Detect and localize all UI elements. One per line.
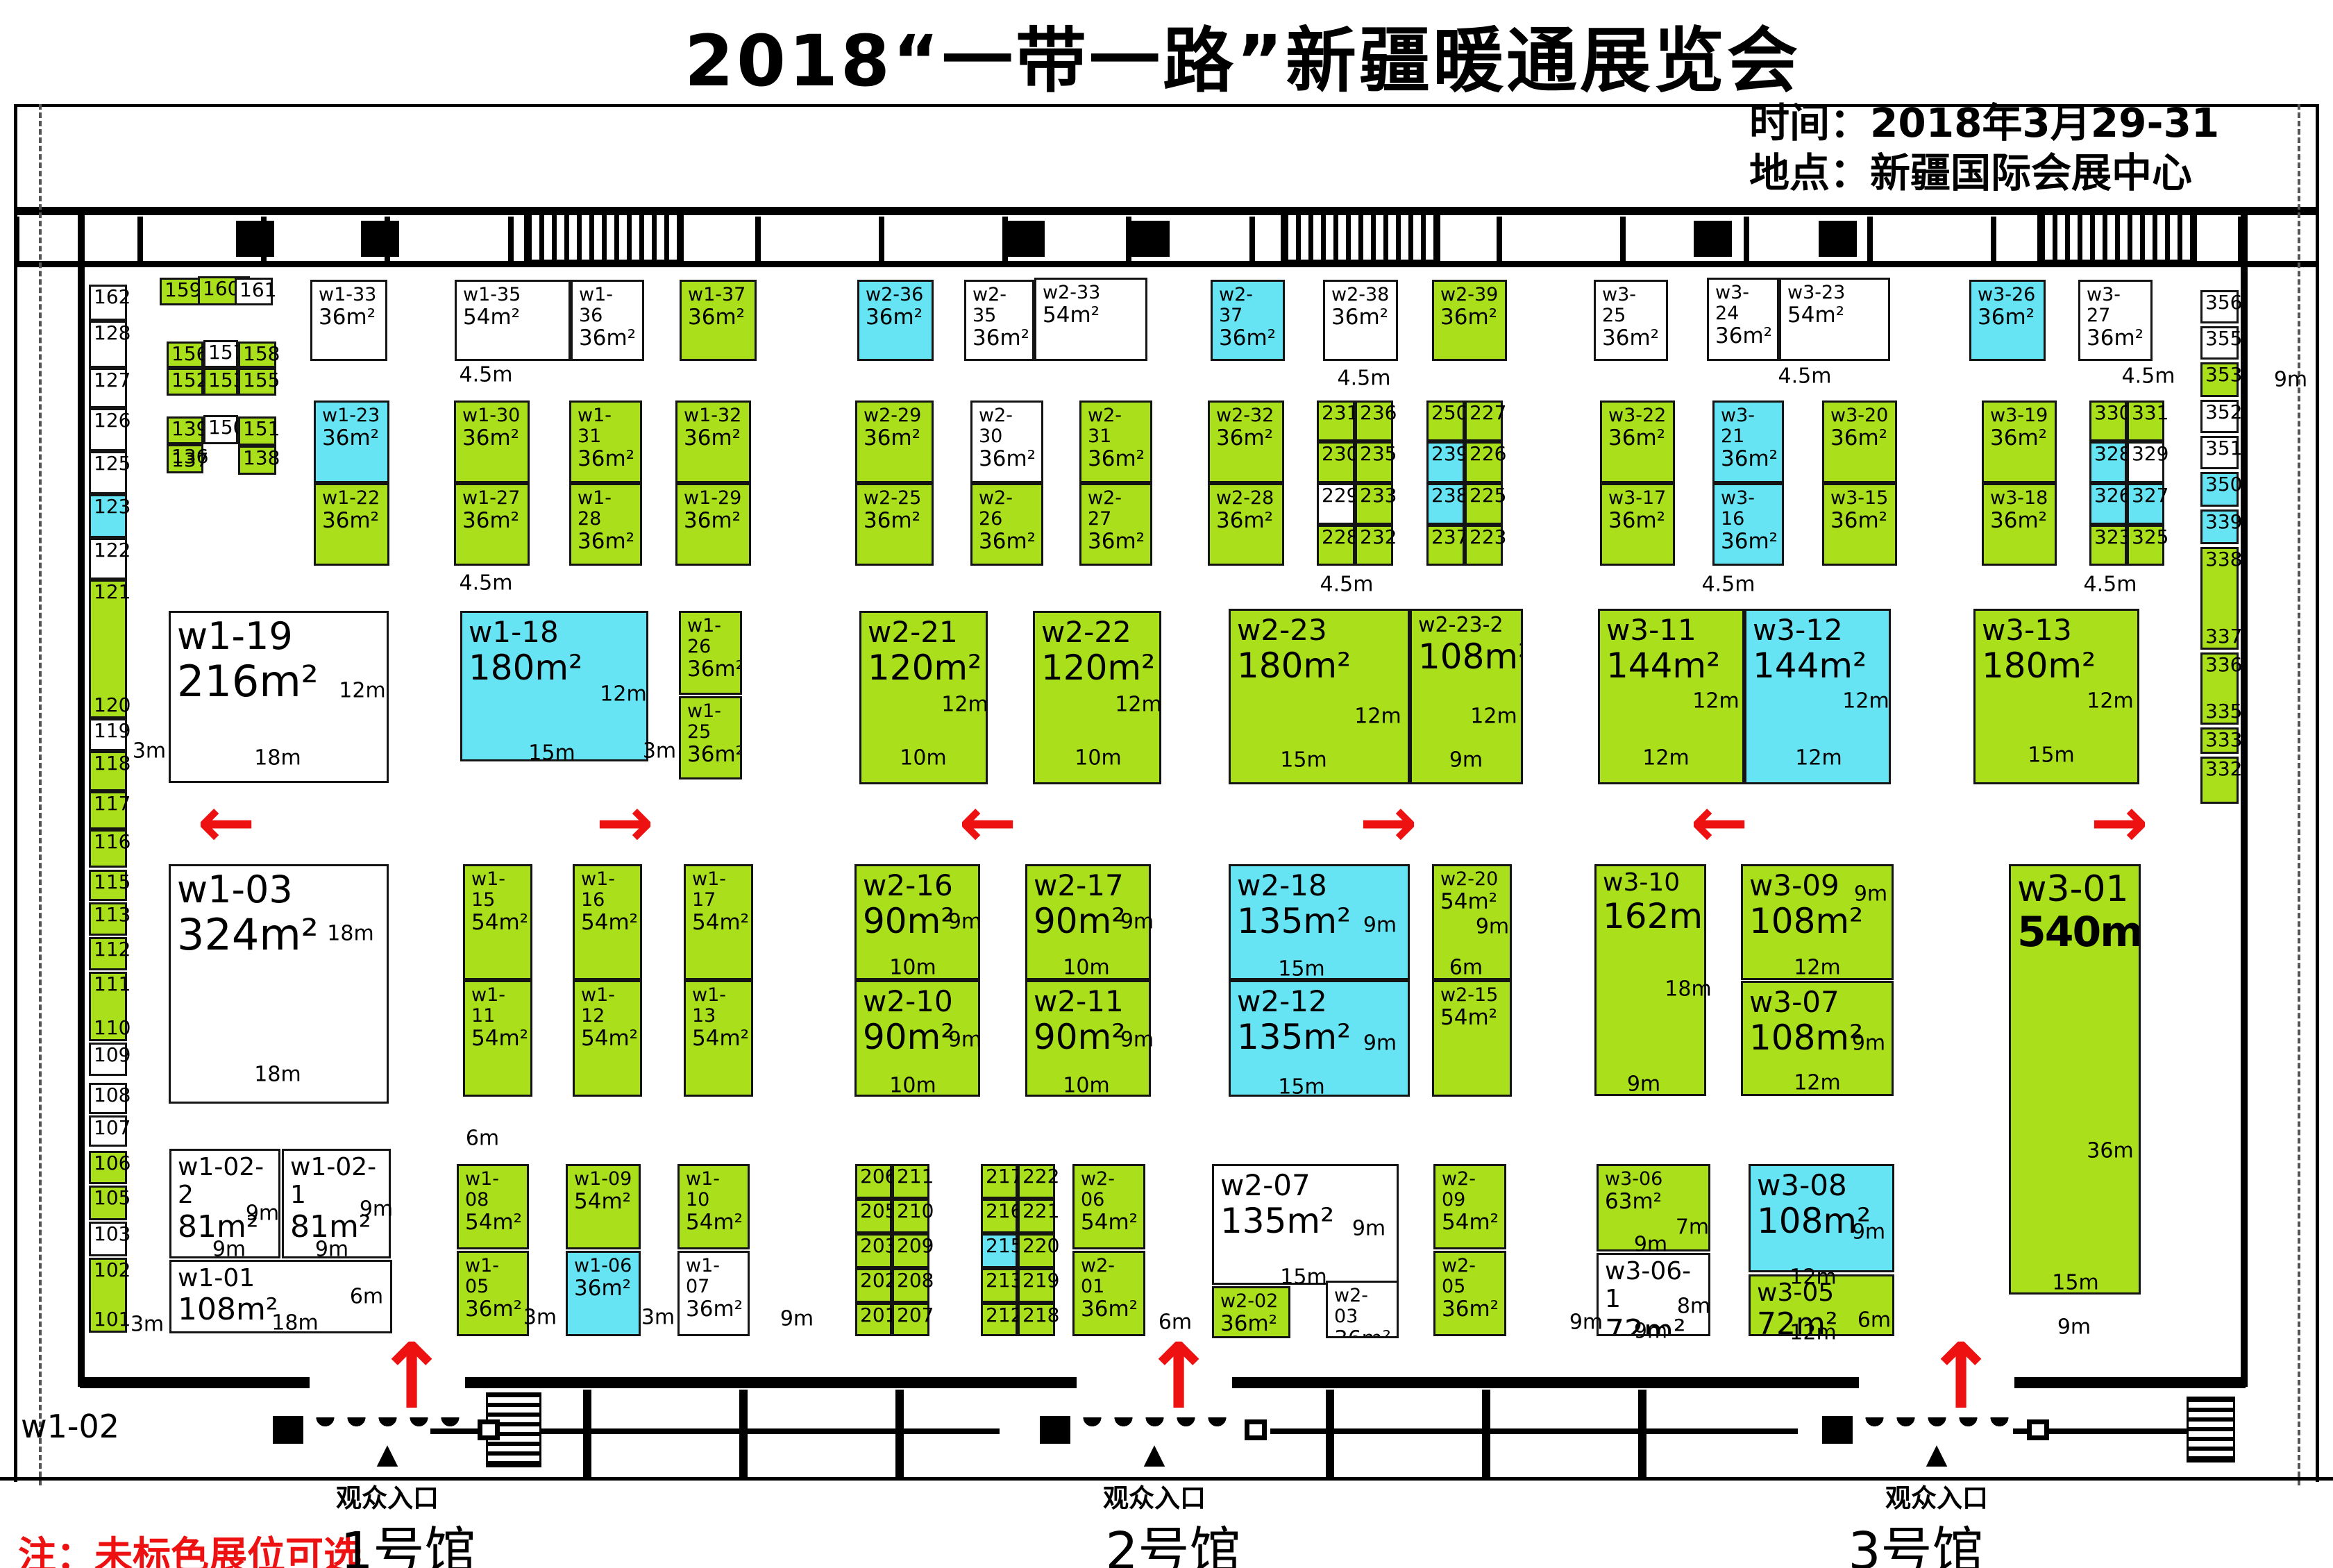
left-arrow-icon: ← [1690, 788, 1749, 857]
booth-id-label: w2-11 [1034, 985, 1143, 1018]
booth-area-label: 36m² [1220, 1312, 1282, 1336]
booth-227[interactable]: 227 [1465, 401, 1503, 441]
booth-w2-03[interactable]: w2-0336m² [1326, 1281, 1399, 1338]
booth-217[interactable]: 217 [981, 1164, 1018, 1199]
cell-number-label: 117 [94, 792, 130, 815]
booth-123[interactable]: 123 [89, 494, 127, 538]
corridor-post-1 [583, 1390, 591, 1477]
dimension-label: 36m [2087, 1139, 2133, 1163]
booth-w1-30[interactable]: w1-3036m² [454, 401, 530, 483]
booth-area-label: 54m² [471, 1027, 524, 1051]
booth-355[interactable]: 355 [2200, 326, 2239, 360]
booth-323[interactable]: 323 [2089, 525, 2127, 566]
booth-id-label: w1-25 [687, 701, 734, 743]
dimension-label: 7m [1676, 1215, 1709, 1240]
dimension-label: 9m [1854, 882, 1887, 907]
booth-w3-22[interactable]: w3-2236m² [1600, 401, 1675, 483]
booth-area-label: 36m² [579, 326, 636, 351]
booth-338[interactable]: 338337 [2200, 547, 2239, 650]
corridor-post-4 [1326, 1390, 1334, 1477]
dimension-label: 12m [1692, 689, 1739, 714]
booth-area-label: 36m² [1216, 509, 1276, 533]
availability-note: 注：未标色展位可选 [18, 1524, 362, 1568]
booth-w1-35[interactable]: w1-3554m² [455, 280, 571, 361]
cell-number-label: 101 [94, 1310, 130, 1329]
booth-id-label: w1-10 [686, 1169, 741, 1211]
dimension-label: 6m [1858, 1308, 1891, 1333]
booth-111[interactable]: 111110 [89, 972, 127, 1041]
booth-237[interactable]: 237 [1426, 525, 1465, 566]
booth-328[interactable]: 328 [2089, 441, 2127, 483]
booth-w3-08[interactable]: w3-08108m² [1749, 1164, 1894, 1272]
booth-107[interactable]: 107 [89, 1115, 127, 1147]
booth-213[interactable]: 213 [981, 1268, 1018, 1303]
booth-121[interactable]: 121120 [89, 580, 127, 718]
booth-230[interactable]: 230 [1317, 441, 1355, 483]
booth-117[interactable]: 117 [89, 791, 127, 829]
booth-id-label: w3-26 [1978, 285, 2037, 305]
booth-113[interactable]: 113 [89, 902, 127, 936]
booth-w3-21[interactable]: w3-2136m² [1712, 401, 1784, 483]
booth-w2-28[interactable]: w2-2836m² [1208, 483, 1284, 566]
booth-w3-20[interactable]: w3-2036m² [1822, 401, 1897, 483]
booth-150[interactable]: 150 [203, 415, 238, 444]
booth-area-label: 36m² [322, 426, 381, 450]
booth-id-label: w1-13 [692, 985, 745, 1027]
booth-225[interactable]: 225 [1465, 483, 1503, 525]
dimension-label: 4.5m [460, 571, 513, 596]
booth-id-label: w3-12 [1753, 614, 1883, 646]
booth-w1-23[interactable]: w1-2336m² [314, 401, 389, 483]
booth-w1-22[interactable]: w1-2236m² [314, 483, 389, 566]
booth-209[interactable]: 209 [892, 1233, 929, 1268]
top-door-block-1 [236, 221, 274, 257]
booth-area-label: 36m² [319, 305, 379, 330]
booth-161[interactable]: 161 [235, 278, 273, 305]
booth-w2-31[interactable]: w2-3136m² [1079, 401, 1152, 483]
booth-id-label: w1-12 [581, 985, 634, 1027]
hall-label-2号馆: 2号馆 [1105, 1510, 1240, 1568]
booth-id-label: w3-01 [2017, 869, 2132, 909]
booth-area-label: 54m² [692, 1027, 745, 1051]
booth-w2-25[interactable]: w2-2536m² [855, 483, 934, 566]
booth-area-label: 108m² [1418, 637, 1515, 676]
booth-231[interactable]: 231 [1317, 401, 1355, 441]
booth-331[interactable]: 331 [2127, 401, 2164, 441]
dimension-label: 12m [941, 693, 988, 717]
booth-id-label: w3-08 [1757, 1169, 1886, 1202]
dimension-label: 4.5m [1338, 366, 1391, 391]
dimension-label: 15m [2052, 1271, 2098, 1295]
booth-223[interactable]: 223 [1465, 525, 1503, 566]
booth-id-label: w2-18 [1237, 869, 1401, 902]
booth-w1-28[interactable]: w1-2836m² [569, 483, 642, 566]
booth-id-label: w2-17 [1034, 869, 1143, 902]
dimension-label: 18m [254, 746, 301, 770]
booth-area-label: 36m² [1088, 530, 1144, 554]
booth-area-label: 36m² [687, 743, 734, 767]
booth-id-label: w3-11 [1606, 614, 1736, 646]
dimension-label: 18m [1665, 977, 1711, 1002]
booth-w1-17[interactable]: w1-1754m² [684, 864, 753, 980]
cell-number-label: 118 [94, 752, 130, 775]
cell-number-label: 122 [94, 539, 130, 562]
booth-w3-01[interactable]: w3-01540m² [2009, 864, 2141, 1295]
dimension-label: 4.5m [1320, 573, 1374, 597]
booth-area-label: 180m² [1237, 646, 1401, 685]
booth-w1-26[interactable]: w1-2636m² [679, 611, 742, 695]
booth-w2-27[interactable]: w2-2736m² [1079, 483, 1152, 566]
entrance-label: 观众入口 [1885, 1477, 1988, 1515]
cell-number-label: 236 [1360, 401, 1397, 424]
booth-area-label: 36m² [578, 530, 634, 554]
booth-350[interactable]: 350 [2200, 472, 2239, 507]
outer-wall-top [14, 104, 2318, 107]
right-axis-dashline [2298, 104, 2300, 1485]
booth-id-label: w2-33 [1043, 283, 1139, 303]
booth-233[interactable]: 233 [1355, 483, 1393, 525]
booth-area-label: 54m² [581, 1027, 634, 1051]
booth-id-label: w2-38 [1331, 285, 1390, 305]
booth-area-label: 36m² [1081, 1297, 1137, 1322]
booth-w2-02[interactable]: w2-0236m² [1212, 1286, 1290, 1338]
dimension-label: 9m [1352, 1217, 1386, 1241]
cell-number-label: 209 [897, 1234, 934, 1257]
booth-id-label: w1-16 [581, 869, 634, 911]
booth-id-label: w1-37 [688, 285, 748, 305]
booth-228[interactable]: 228 [1317, 525, 1355, 566]
booth-232[interactable]: 232 [1355, 525, 1393, 566]
booth-id-label: w1-28 [578, 488, 634, 530]
booth-w3-23[interactable]: w3-2354m² [1779, 278, 1890, 361]
booth-w2-39[interactable]: w2-3936m² [1432, 280, 1507, 361]
booth-w1-31[interactable]: w1-3136m² [569, 401, 642, 483]
booth-area-label: 36m² [1442, 1297, 1498, 1322]
dimension-label: 12m [2087, 689, 2133, 714]
booth-136[interactable]: 136137 [167, 444, 203, 473]
dimension-label: 10m [889, 956, 936, 980]
booth-102[interactable]: 102101 [89, 1258, 127, 1333]
booth-area-label: 54m² [581, 911, 634, 935]
booth-area-label: 36m² [1602, 326, 1660, 351]
top-door-block-4 [1131, 221, 1170, 257]
booth-id-label: w1-26 [687, 616, 734, 657]
booth-id-label: w3-07 [1749, 986, 1885, 1018]
booth-112[interactable]: 112 [89, 937, 127, 970]
booth-w2-09[interactable]: w2-0954m² [1433, 1164, 1506, 1249]
booth-109[interactable]: 109 [89, 1043, 127, 1076]
booth-235[interactable]: 235 [1355, 441, 1393, 483]
cell-number-label: 352 [2205, 401, 2242, 423]
booth-id-label: w2-28 [1216, 488, 1276, 509]
booth-356[interactable]: 356 [2200, 290, 2239, 323]
booth-w1-32[interactable]: w1-3236m² [675, 401, 751, 483]
booth-w1-25[interactable]: w1-2536m² [679, 696, 742, 779]
booth-158[interactable]: 158 [238, 342, 276, 368]
booth-area-label: 36m² [578, 447, 634, 471]
entrance-label: 观众入口 [1103, 1477, 1206, 1515]
booth-w3-25[interactable]: w3-2536m² [1594, 280, 1668, 361]
booth-202[interactable]: 202 [855, 1268, 892, 1303]
booth-205[interactable]: 205 [855, 1199, 892, 1233]
booth-222[interactable]: 222 [1018, 1164, 1055, 1199]
booth-area-label: 36m² [866, 305, 925, 330]
booth-w1-29[interactable]: w1-2936m² [675, 483, 751, 566]
corridor-wall-2 [1270, 1428, 1798, 1434]
cell-number-label: 233 [1360, 484, 1397, 507]
booth-w2-26[interactable]: w2-2636m² [970, 483, 1043, 566]
booth-id-label: w3-23 [1787, 283, 1882, 303]
booth-125[interactable]: 125 [89, 451, 127, 494]
booth-area-label: 36m² [688, 305, 748, 330]
cell-number-label: 220 [1022, 1234, 1059, 1257]
booth-238[interactable]: 238 [1426, 483, 1465, 525]
cell-number-label: 331 [2132, 401, 2168, 424]
booth-207[interactable]: 207 [892, 1303, 929, 1336]
booth-229[interactable]: 229 [1317, 483, 1355, 525]
booth-w1-15[interactable]: w1-1554m² [463, 864, 532, 980]
entrance-label: 观众入口 [336, 1477, 439, 1515]
dimension-label: 9m [315, 1238, 348, 1262]
booth-218[interactable]: 218 [1018, 1303, 1055, 1336]
booth-id-label: w2-16 [863, 869, 972, 902]
booth-w1-13[interactable]: w1-1354m² [684, 980, 753, 1097]
dimension-label: 4.5m [1778, 364, 1832, 389]
booth-325[interactable]: 325 [2127, 525, 2164, 566]
booth-203[interactable]: 203 [855, 1233, 892, 1268]
booth-326[interactable]: 326 [2089, 483, 2127, 525]
booth-216[interactable]: 216 [981, 1199, 1018, 1233]
booth-105[interactable]: 105 [89, 1186, 127, 1220]
cell-number-label: 155 [243, 369, 280, 391]
cell-number-label: 338 [2205, 548, 2242, 571]
booth-155[interactable]: 155 [238, 368, 276, 396]
booth-w1-12[interactable]: w1-1254m² [573, 980, 642, 1097]
cell-number-label: 353 [2205, 363, 2242, 386]
booth-156[interactable]: 156 [167, 342, 203, 368]
inner-wall-left [78, 207, 85, 1387]
booth-208[interactable]: 208 [892, 1268, 929, 1303]
booth-id-label: w3-06 [1605, 1169, 1702, 1190]
booth-w1-16[interactable]: w1-1654m² [573, 864, 642, 980]
entrance-pier-block [273, 1416, 303, 1444]
booth-w2-38[interactable]: w2-3836m² [1323, 280, 1398, 361]
booth-area-label: 108m² [1749, 902, 1885, 941]
booth-w3-26[interactable]: w3-2636m² [1969, 280, 2046, 361]
cell-number-label: 107 [94, 1116, 130, 1139]
booth-211[interactable]: 211 [892, 1164, 929, 1199]
booth-w2-30[interactable]: w2-3036m² [970, 401, 1043, 483]
booth-area-label: 540m² [2017, 909, 2132, 956]
booth-152[interactable]: 152 [167, 368, 203, 396]
booth-w1-11[interactable]: w1-1154m² [463, 980, 532, 1097]
booth-w1-10[interactable]: w1-1054m² [677, 1164, 750, 1249]
booth-id-label: w2-31 [1088, 405, 1144, 447]
booth-id-label: w2-03 [1334, 1285, 1390, 1327]
top-door-block-2 [361, 221, 399, 257]
dimension-label: 4.5m [1702, 573, 1755, 597]
booth-138[interactable]: 138 [238, 446, 276, 475]
booth-w3-27[interactable]: w3-2736m² [2078, 280, 2153, 361]
booth-353[interactable]: 353 [2200, 362, 2239, 397]
booth-206[interactable]: 206 [855, 1164, 892, 1199]
booth-128[interactable]: 128 [89, 321, 127, 368]
booth-w1-07[interactable]: w1-0736m² [677, 1251, 750, 1336]
booth-162[interactable]: 162 [89, 285, 127, 321]
stair-hatch-3 [2037, 212, 2197, 262]
entrance-triangle-icon: ▲ [1926, 1440, 1948, 1468]
booth-336[interactable]: 336335 [2200, 652, 2239, 725]
booth-221[interactable]: 221 [1018, 1199, 1055, 1233]
dimension-label: 18m [327, 922, 373, 946]
stair-hatch-2 [1281, 212, 1440, 262]
booth-126[interactable]: 126 [89, 408, 127, 451]
booth-339[interactable]: 339 [2200, 509, 2239, 544]
booth-106[interactable]: 106 [89, 1151, 127, 1184]
booth-122[interactable]: 122 [89, 538, 127, 580]
booth-w2-29[interactable]: w2-2936m² [855, 401, 934, 483]
cell-number-label: 327 [2132, 484, 2168, 507]
booth-w1-37[interactable]: w1-3736m² [680, 280, 757, 361]
booth-w2-32[interactable]: w2-3236m² [1208, 401, 1284, 483]
corridor-label-w1-02: w1-02 [21, 1408, 119, 1445]
booth-220[interactable]: 220 [1018, 1233, 1055, 1268]
booth-119[interactable]: 119 [89, 718, 127, 751]
booth-w3-17[interactable]: w3-1736m² [1600, 483, 1675, 566]
booth-153[interactable]: 153 [203, 368, 238, 396]
corridor-post-6 [1638, 1390, 1646, 1477]
booth-area-label: 54m² [1043, 303, 1139, 328]
booth-w2-37[interactable]: w2-3736m² [1211, 280, 1285, 361]
cell-number-label: 229 [1322, 484, 1358, 507]
dimension-label: 12m [1795, 746, 1842, 770]
cell-number-label: 207 [897, 1304, 934, 1326]
booth-352[interactable]: 352 [2200, 400, 2239, 433]
booth-id-label: w2-02 [1220, 1291, 1282, 1312]
booth-w1-06[interactable]: w1-0636m² [566, 1251, 641, 1336]
booth-327[interactable]: 327 [2127, 483, 2164, 525]
booth-329[interactable]: 329 [2127, 441, 2164, 483]
booth-id-label: w3-16 [1721, 488, 1776, 530]
booth-id-label: w2-21 [868, 616, 979, 648]
booth-w1-36[interactable]: w1-3636m² [571, 280, 644, 361]
booth-area-label: 36m² [322, 509, 381, 533]
booth-139[interactable]: 139 [167, 416, 203, 444]
cell-number-label: 230 [1322, 442, 1358, 465]
booth-226[interactable]: 226 [1465, 441, 1503, 483]
booth-w3-24[interactable]: w3-2436m² [1707, 278, 1779, 361]
booth-w2-36[interactable]: w2-3636m² [857, 280, 934, 361]
booth-id-label: w2-26 [979, 488, 1035, 530]
dimension-label: 10m [1063, 956, 1109, 980]
dimension-label: 12m [339, 679, 385, 703]
cell-number-label: 138 [243, 446, 280, 469]
booth-w1-05[interactable]: w1-0536m² [457, 1251, 529, 1336]
booth-id-label: w3-15 [1830, 488, 1889, 509]
cell-number-label: 159 [165, 278, 201, 301]
booth-id-label: w2-15 [1440, 985, 1504, 1006]
cell-number-label: 219 [1022, 1269, 1059, 1292]
booth-id-label: w1-36 [579, 285, 636, 326]
booth-127[interactable]: 127 [89, 368, 127, 408]
booth-239[interactable]: 239 [1426, 441, 1465, 483]
booth-w2-06[interactable]: w2-0654m² [1072, 1164, 1145, 1249]
booth-area-label: 36m² [465, 1297, 521, 1322]
dimension-label: 15m [2028, 743, 2074, 768]
dimension-label: 15m [528, 741, 575, 766]
booth-212[interactable]: 212 [981, 1303, 1018, 1336]
booth-id-label: w2-22 [1041, 616, 1153, 648]
dimension-label: 10m [1075, 746, 1121, 770]
booth-250[interactable]: 250 [1426, 401, 1465, 441]
booth-333[interactable]: 333 [2200, 727, 2239, 754]
booth-w2-05[interactable]: w2-0536m² [1433, 1251, 1506, 1336]
booth-area-label: 36m² [1990, 509, 2048, 533]
booth-w2-33[interactable]: w2-3354m² [1034, 278, 1147, 361]
booth-w3-19[interactable]: w3-1936m² [1982, 401, 2057, 483]
booth-area-label: 54m² [574, 1190, 632, 1214]
booth-w3-18[interactable]: w3-1836m² [1982, 483, 2057, 566]
booth-w1-33[interactable]: w1-3336m² [310, 280, 387, 361]
booth-w1-27[interactable]: w1-2736m² [454, 483, 530, 566]
booth-219[interactable]: 219 [1018, 1268, 1055, 1303]
booth-area-label: 36m² [684, 426, 743, 450]
booth-115[interactable]: 115 [89, 870, 127, 901]
cell-number-label: 109 [94, 1043, 130, 1066]
booth-w2-01[interactable]: w2-0136m² [1072, 1251, 1145, 1336]
booth-id-label: w2-06 [1081, 1169, 1137, 1211]
booth-area-label: 36m² [1088, 447, 1144, 471]
cell-number-label: 127 [94, 369, 130, 391]
booth-118[interactable]: 118 [89, 751, 127, 791]
booth-area-label: 36m² [1331, 305, 1390, 330]
corridor-post-3 [895, 1390, 904, 1477]
booth-215[interactable]: 215 [981, 1233, 1018, 1268]
booth-area-label: 36m² [2087, 326, 2144, 351]
booth-330[interactable]: 330 [2089, 401, 2127, 441]
booth-w3-15[interactable]: w3-1536m² [1822, 483, 1897, 566]
booth-w2-15[interactable]: w2-1554m² [1432, 980, 1512, 1097]
left-arrow-icon: ← [959, 788, 1017, 857]
booth-w1-08[interactable]: w1-0854m² [457, 1164, 529, 1249]
booth-w1-09[interactable]: w1-0954m² [566, 1164, 641, 1249]
booth-157[interactable]: 157 [203, 340, 238, 368]
booth-id-label: w2-27 [1088, 488, 1144, 530]
booth-area-label: 120m² [1041, 648, 1153, 687]
booth-w3-16[interactable]: w3-1636m² [1712, 483, 1784, 566]
booth-210[interactable]: 210 [892, 1199, 929, 1233]
booth-151[interactable]: 151 [238, 416, 276, 446]
dimension-label: 3m [641, 1306, 675, 1330]
booth-id-label: w1-35 [463, 285, 562, 305]
booth-236[interactable]: 236 [1355, 401, 1393, 441]
booth-332[interactable]: 332 [2200, 757, 2239, 804]
dimension-label: 12m [1642, 746, 1689, 770]
booth-351[interactable]: 351 [2200, 436, 2239, 469]
booth-108[interactable]: 108 [89, 1083, 127, 1114]
booth-id-label: w1-22 [322, 488, 381, 509]
booth-201[interactable]: 201 [855, 1303, 892, 1336]
booth-area-label: 54m² [692, 911, 745, 935]
booth-w2-35[interactable]: w2-3536m² [964, 280, 1034, 361]
booth-116[interactable]: 116 [89, 829, 127, 868]
booth-area-label: 36m² [574, 1276, 632, 1301]
booth-103[interactable]: 103 [89, 1222, 127, 1256]
booth-area-label: 54m² [463, 305, 562, 330]
cell-number-label: 123 [94, 495, 130, 518]
cell-number-label: 356 [2205, 291, 2242, 314]
booth-id-label: w1-06 [574, 1256, 632, 1276]
